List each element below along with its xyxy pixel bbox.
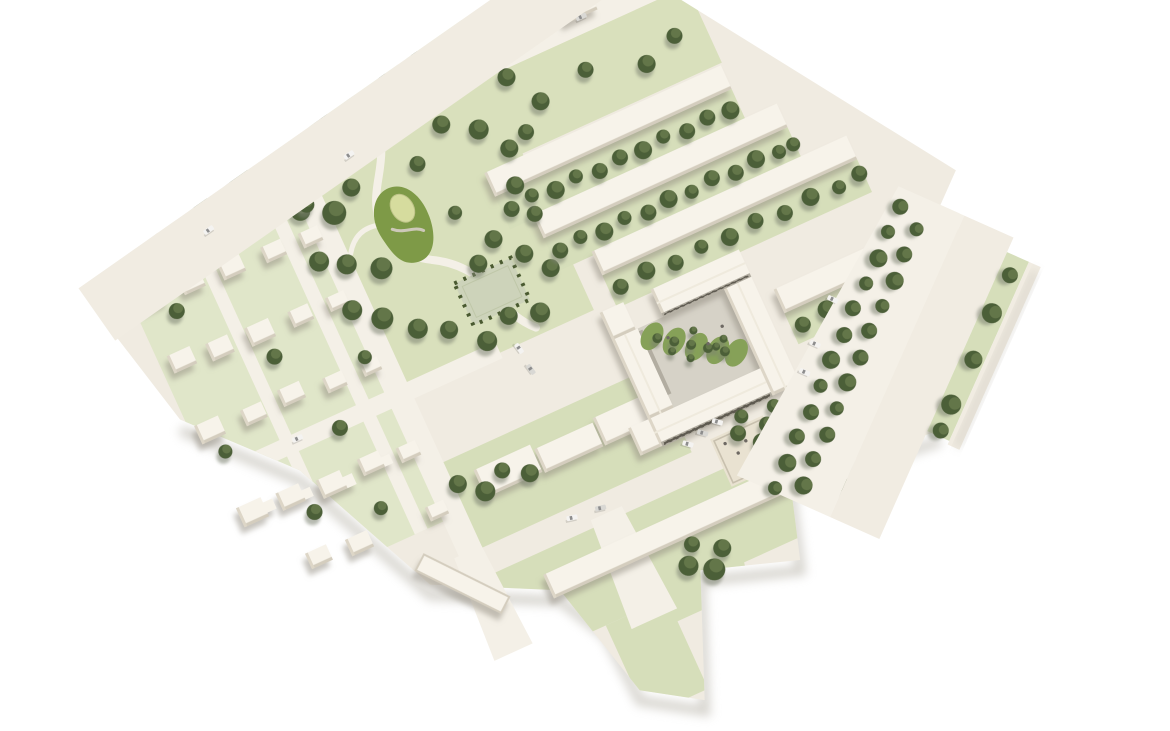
site-plan-figure: [0, 0, 1170, 731]
site-plan-svg: [0, 0, 1170, 731]
